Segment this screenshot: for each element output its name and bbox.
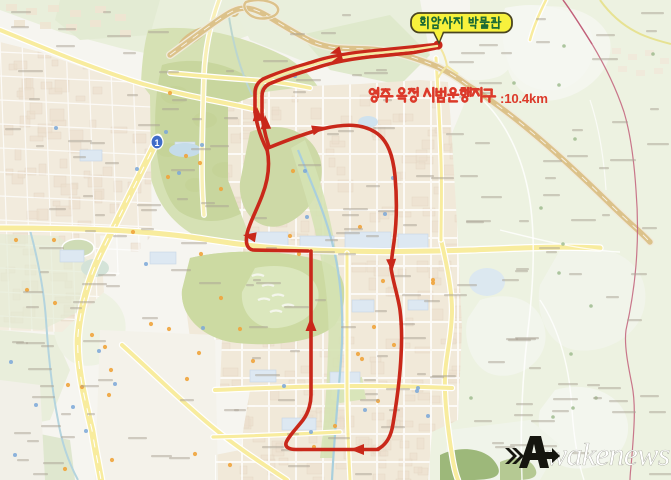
svg-text::10.4km: :10.4km	[500, 91, 548, 106]
svg-text:wakenews: wakenews	[546, 436, 670, 472]
svg-text:1: 1	[154, 138, 159, 148]
